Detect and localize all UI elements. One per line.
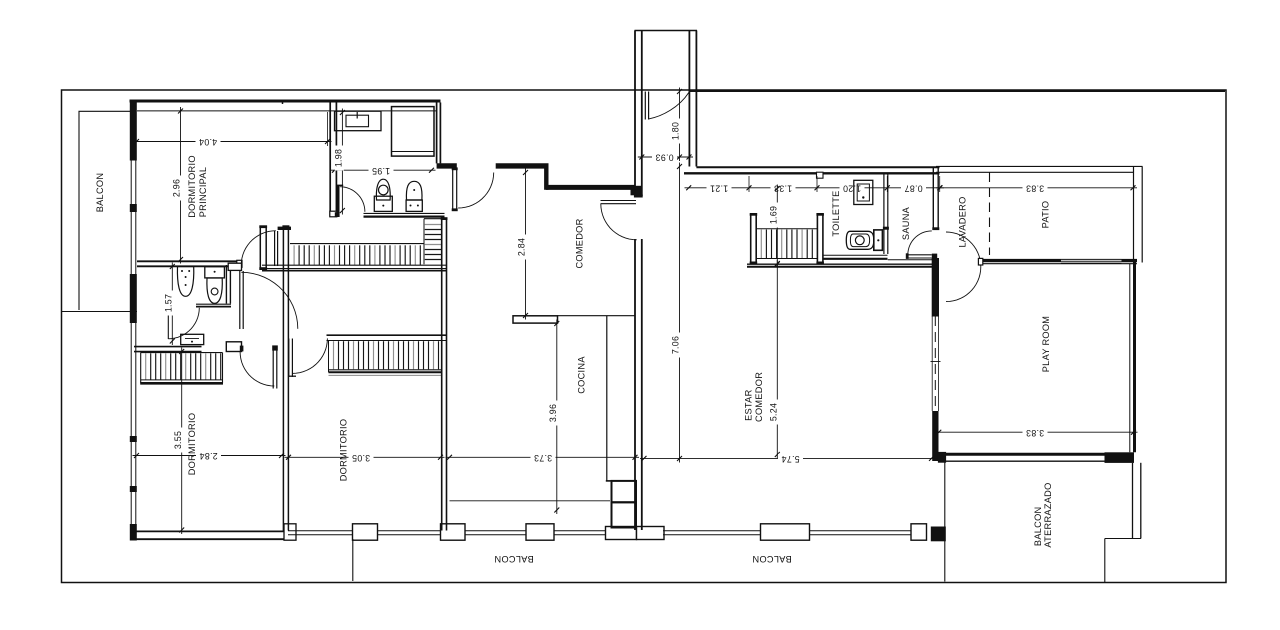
- svg-text:3.73: 3.73: [534, 453, 552, 463]
- svg-text:0.87: 0.87: [904, 183, 922, 193]
- svg-text:3.55: 3.55: [173, 431, 183, 449]
- svg-text:1.69: 1.69: [768, 206, 778, 224]
- svg-text:TOILETTE: TOILETTE: [831, 190, 841, 236]
- svg-text:PLAY ROOM: PLAY ROOM: [1041, 316, 1051, 372]
- svg-text:BALCON: BALCON: [1033, 507, 1043, 547]
- svg-text:5.74: 5.74: [781, 454, 799, 464]
- svg-text:COCINA: COCINA: [576, 356, 586, 394]
- svg-text:1.95: 1.95: [372, 166, 390, 176]
- svg-text:0.93: 0.93: [655, 153, 673, 163]
- svg-text:3.83: 3.83: [1026, 183, 1044, 193]
- svg-text:4.04: 4.04: [199, 137, 217, 147]
- svg-text:1.20: 1.20: [843, 183, 861, 193]
- svg-text:BALCON: BALCON: [494, 554, 534, 564]
- svg-text:1.80: 1.80: [671, 122, 681, 140]
- svg-text:PRINCIPAL: PRINCIPAL: [198, 167, 208, 218]
- svg-text:1.57: 1.57: [163, 294, 173, 312]
- svg-text:DORMITORIO: DORMITORIO: [338, 419, 348, 482]
- svg-text:ATERRAZADO: ATERRAZADO: [1043, 482, 1053, 547]
- svg-text:LAVADERO: LAVADERO: [957, 196, 967, 247]
- svg-text:PATIO: PATIO: [1040, 201, 1050, 229]
- svg-text:BALCON: BALCON: [752, 554, 792, 564]
- svg-text:1.98: 1.98: [334, 149, 344, 167]
- svg-text:2.84: 2.84: [517, 238, 527, 256]
- svg-text:ESTAR: ESTAR: [743, 389, 753, 421]
- svg-text:SAUNA: SAUNA: [901, 206, 911, 240]
- svg-text:3.05: 3.05: [352, 453, 370, 463]
- svg-text:DORMITORIO: DORMITORIO: [187, 413, 197, 476]
- svg-text:3.96: 3.96: [548, 404, 558, 422]
- svg-text:DORMITORIO: DORMITORIO: [187, 155, 197, 218]
- svg-text:2.96: 2.96: [172, 179, 182, 197]
- svg-text:BALCON: BALCON: [95, 173, 105, 213]
- svg-text:5.24: 5.24: [768, 403, 778, 421]
- svg-text:COMEDOR: COMEDOR: [754, 372, 764, 422]
- svg-text:2.84: 2.84: [199, 451, 217, 461]
- svg-text:7.06: 7.06: [671, 336, 681, 354]
- svg-text:3.83: 3.83: [1026, 428, 1044, 438]
- svg-text:COMEDOR: COMEDOR: [574, 218, 584, 268]
- svg-text:1.21: 1.21: [710, 183, 728, 193]
